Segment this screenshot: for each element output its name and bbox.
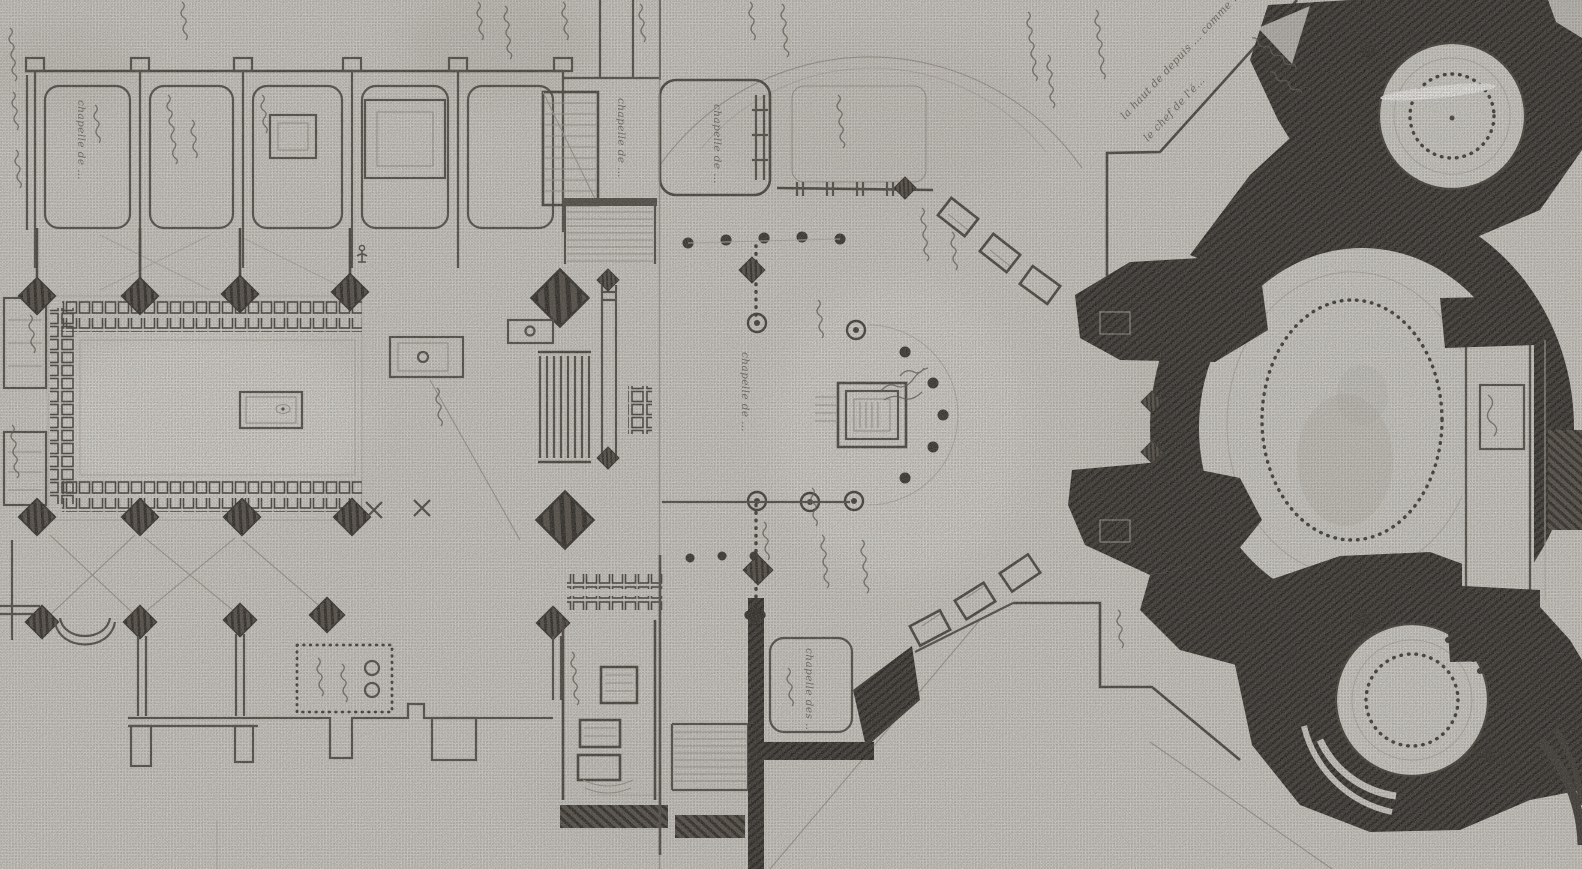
print-grain-overlay [0, 0, 1582, 869]
plan-drawing: chapelle de … chapelle de … chapelle de … [0, 0, 1582, 869]
scanned-floor-plan: chapelle de … chapelle de … chapelle de … [0, 0, 1582, 869]
